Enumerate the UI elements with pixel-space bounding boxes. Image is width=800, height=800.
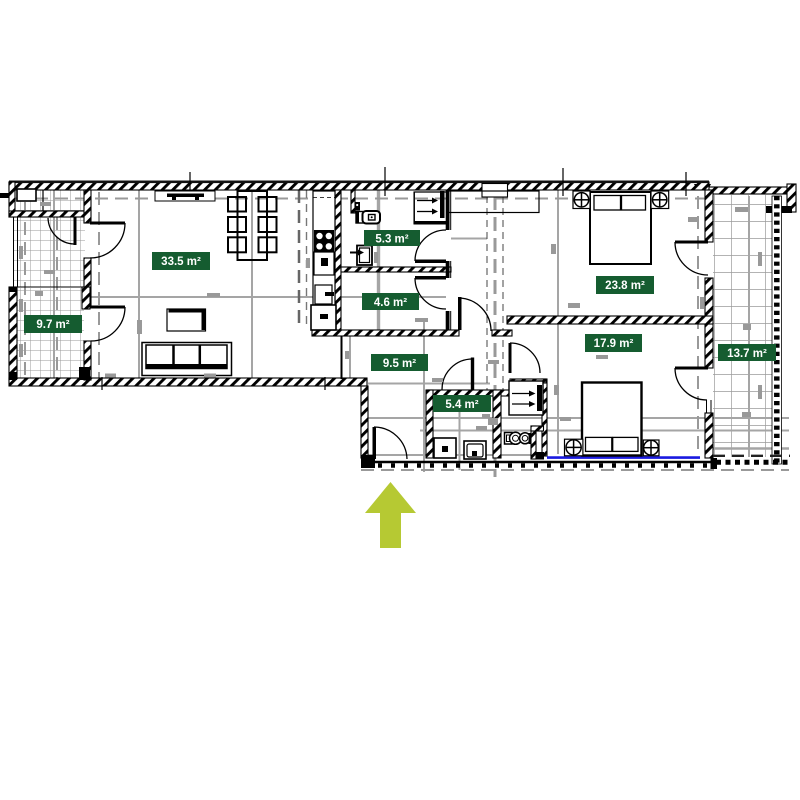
svg-text:5.4 m²: 5.4 m² <box>445 399 478 411</box>
svg-text:23.8 m²: 23.8 m² <box>605 280 645 292</box>
svg-text:4.6 m²: 4.6 m² <box>374 297 407 309</box>
svg-text:5.3 m²: 5.3 m² <box>375 234 408 246</box>
svg-text:33.5 m²: 33.5 m² <box>161 256 201 268</box>
svg-text:13.7 m²: 13.7 m² <box>727 348 767 360</box>
svg-text:9.7 m²: 9.7 m² <box>36 319 69 331</box>
svg-text:9.5 m²: 9.5 m² <box>383 358 416 370</box>
svg-text:17.9 m²: 17.9 m² <box>594 338 634 350</box>
